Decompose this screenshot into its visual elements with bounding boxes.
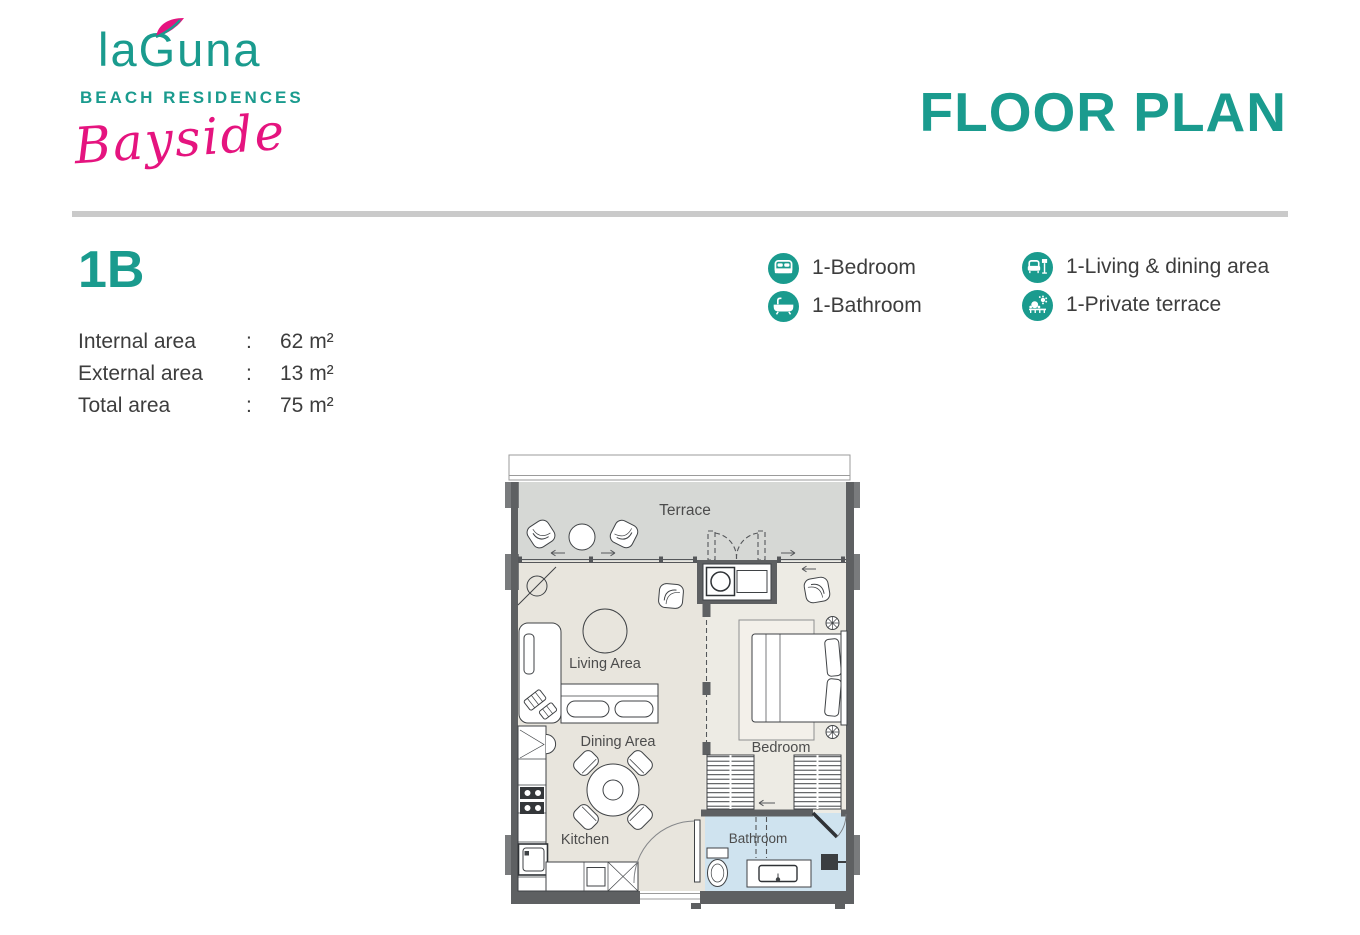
kitchen-sink (519, 844, 548, 875)
brand-collection: Bayside (72, 103, 288, 176)
area-separator: : (246, 326, 280, 358)
area-separator: : (246, 358, 280, 390)
legend-label: 1-Bathroom (812, 294, 922, 318)
area-row-total: Total area:75 m² (78, 390, 334, 422)
legend-item-bedroom: 1-Bedroom (768, 252, 916, 284)
bed-icon (768, 253, 799, 284)
utility-counter (737, 571, 767, 593)
legend-item-bathroom: 1-Bathroom (768, 290, 922, 322)
living-label: Living Area (569, 656, 642, 672)
legend-item-private-terrace: 1-Private terrace (1022, 289, 1221, 321)
floor-plan-page: laGuna BEACH RESIDENCES Bayside FLOOR PL… (0, 0, 1360, 935)
area-table: Internal area:62 m² External area:13 m² … (78, 326, 334, 422)
legend-label: 1-Living & dining area (1066, 255, 1269, 279)
area-row-internal: Internal area:62 m² (78, 326, 334, 358)
area-value: 75 m² (280, 394, 334, 417)
area-value: 62 m² (280, 330, 334, 353)
area-value: 13 m² (280, 362, 334, 385)
chaise (519, 623, 561, 723)
legend-label: 1-Bedroom (812, 256, 916, 280)
bedroom-label: Bedroom (752, 740, 811, 756)
legend-item-living-dining: 1-Living & dining area (1022, 251, 1269, 283)
legend-label: 1-Private terrace (1066, 293, 1221, 317)
floor-plan-drawing: Terrace Living Area Dining Area Kitchen … (505, 453, 860, 911)
kitchen-label: Kitchen (561, 832, 609, 848)
area-row-external: External area:13 m² (78, 358, 334, 390)
leaf-icon (153, 16, 187, 40)
bathroom-vanity (747, 860, 811, 887)
area-separator: : (246, 390, 280, 422)
area-label: External area (78, 358, 246, 390)
utility-niche (697, 560, 777, 604)
header-divider (72, 211, 1288, 217)
bathtub-icon (768, 291, 799, 322)
bathroom-label: Bathroom (729, 831, 788, 846)
page-title: FLOOR PLAN (920, 80, 1287, 144)
unit-code: 1B (78, 240, 144, 300)
toilet (707, 848, 728, 887)
bed (739, 620, 847, 740)
terrace-label: Terrace (659, 502, 711, 519)
dining-label: Dining Area (581, 734, 657, 750)
area-label: Internal area (78, 326, 246, 358)
sofa-lamp-icon (1022, 252, 1053, 283)
terrace-icon (1022, 290, 1053, 321)
sofa (561, 684, 658, 723)
area-label: Total area (78, 390, 246, 422)
terrace-table (569, 524, 595, 550)
brand-logo: laGuna BEACH RESIDENCES Bayside (78, 18, 378, 198)
